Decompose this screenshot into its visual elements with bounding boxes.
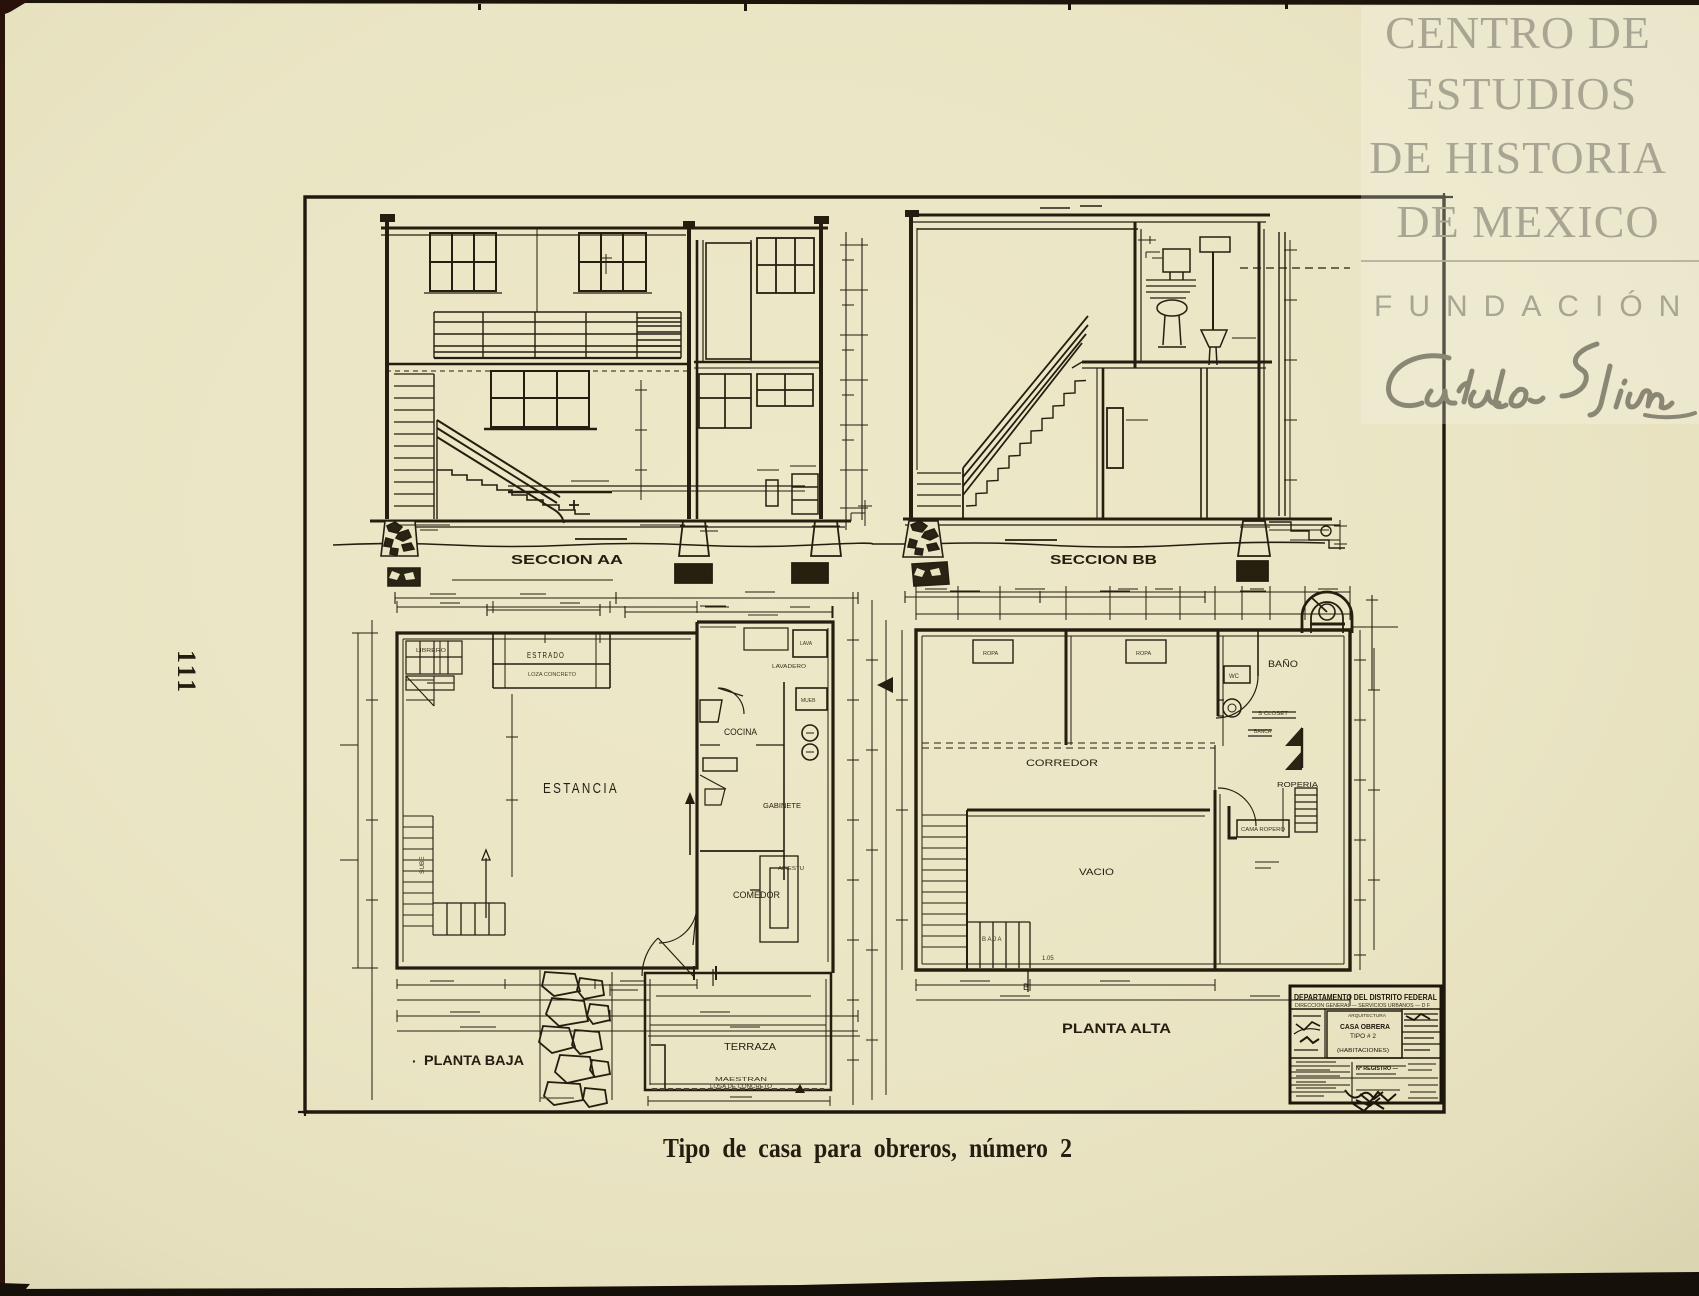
svg-text:ROPERIA: ROPERIA (1277, 780, 1318, 789)
svg-text:SECCION BB: SECCION BB (1050, 553, 1157, 567)
svg-text:MAESTRAN: MAESTRAN (715, 1077, 767, 1083)
svg-text:Nº REGISTRO —: Nº REGISTRO — (1356, 1066, 1398, 1072)
svg-text:DE HISTORIA: DE HISTORIA (1369, 132, 1667, 183)
svg-text:ESTRADO: ESTRADO (527, 651, 565, 660)
svg-text:1.05: 1.05 (1042, 956, 1054, 962)
svg-text:ESTANCIA: ESTANCIA (543, 780, 619, 797)
svg-text:DIRECCION GENERAL — SERVICIOS: DIRECCION GENERAL — SERVICIOS URBANOS — … (1295, 1003, 1430, 1009)
svg-text:S CLOSET: S CLOSET (1258, 711, 1288, 717)
svg-text:SECCION AA: SECCION AA (511, 553, 623, 567)
svg-text:LOZA CONCRETO: LOZA CONCRETO (528, 672, 577, 678)
svg-text:CAMA ROPERO: CAMA ROPERO (1241, 827, 1285, 833)
svg-text:BAJA: BAJA (982, 937, 1003, 943)
svg-text:APIESTU: APIESTU (778, 866, 804, 872)
svg-text:GABINETE: GABINETE (763, 801, 801, 810)
svg-text:MUEB: MUEB (801, 698, 816, 704)
svg-text:DEPARTAMENTO DEL DISTRITO FEDE: DEPARTAMENTO DEL DISTRITO FEDERAL (1294, 993, 1437, 1002)
svg-text:COCINA: COCINA (724, 727, 757, 737)
svg-text:(HABITACIONES): (HABITACIONES) (1337, 1048, 1389, 1054)
svg-text:111: 111 (172, 650, 201, 695)
svg-text:ROPA: ROPA (1136, 651, 1152, 657)
svg-text:CORREDOR: CORREDOR (1026, 758, 1098, 769)
svg-text:PLANTA ALTA: PLANTA ALTA (1062, 1020, 1171, 1036)
svg-text:BAÑO: BAÑO (1268, 659, 1298, 669)
svg-text:PLANTA BAJA: PLANTA BAJA (424, 1052, 524, 1068)
svg-text:SUBE: SUBE (419, 856, 426, 874)
svg-text:VACIO: VACIO (1079, 867, 1114, 878)
svg-text:LIBRERO: LIBRERO (416, 648, 447, 654)
svg-text:LAVADERO: LAVADERO (772, 664, 806, 670)
svg-text:ARQUITECTURA: ARQUITECTURA (1348, 1013, 1386, 1018)
svg-text:ESTUDIOS: ESTUDIOS (1407, 68, 1637, 119)
svg-text:LAVA: LAVA (800, 641, 813, 647)
svg-text:ROPA: ROPA (983, 651, 999, 657)
svg-text:·: · (412, 1053, 417, 1069)
svg-text:CENTRO DE: CENTRO DE (1385, 7, 1651, 58)
svg-text:FUNDACIÓN: FUNDACIÓN (1374, 290, 1696, 323)
svg-text:Tipo de casa para obreros, núm: Tipo de casa para obreros, número 2 (663, 1133, 1072, 1163)
svg-text:TERRAZA: TERRAZA (724, 1042, 776, 1053)
svg-text:CASA OBRERA: CASA OBRERA (1340, 1024, 1390, 1031)
svg-text:WC: WC (1229, 674, 1240, 680)
svg-text:DE MEXICO: DE MEXICO (1396, 196, 1659, 247)
svg-text:BANCA: BANCA (1254, 729, 1272, 735)
svg-text:COMEDOR: COMEDOR (733, 890, 780, 901)
svg-text:B: B (1023, 982, 1029, 992)
svg-text:LOSA DE CONCRETO: LOSA DE CONCRETO (710, 1084, 773, 1090)
svg-text:TIPO # 2: TIPO # 2 (1350, 1033, 1376, 1040)
